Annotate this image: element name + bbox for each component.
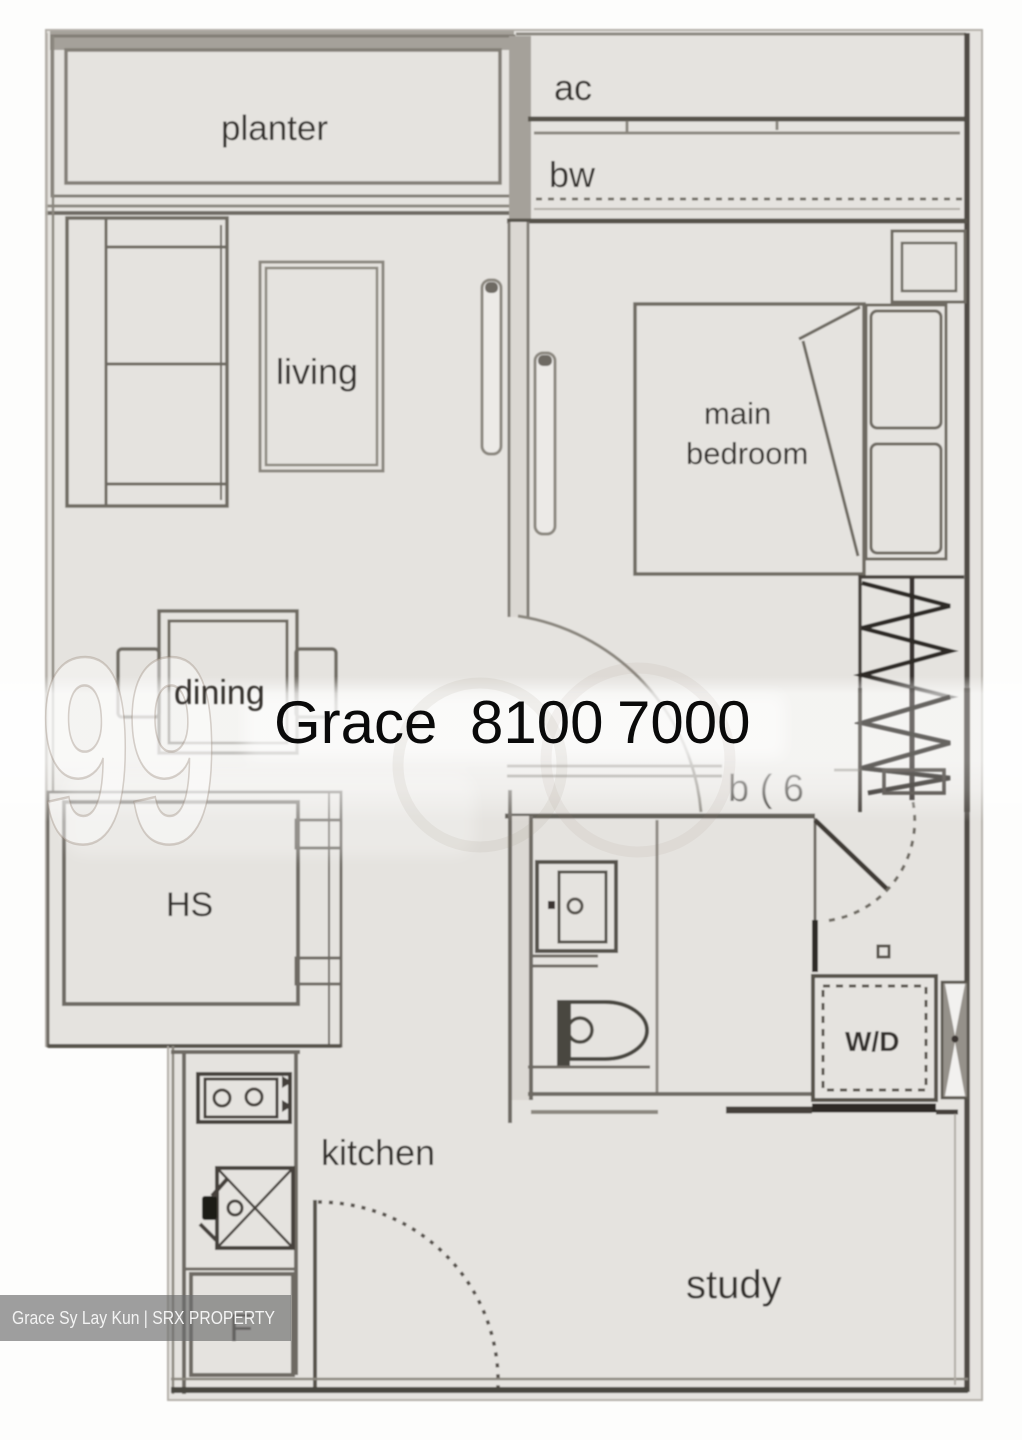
svg-text:99: 99 — [40, 602, 213, 899]
svg-text:7000: 7000 — [617, 689, 750, 756]
svg-text:dining: dining — [174, 674, 265, 712]
svg-text:bedroom: bedroom — [686, 436, 808, 471]
svg-text:study: study — [686, 1263, 782, 1307]
svg-text:ac: ac — [554, 67, 592, 108]
svg-text:W/D: W/D — [845, 1026, 899, 1057]
svg-text:Grace Sy Lay Kun | SRX PROPERT: Grace Sy Lay Kun | SRX PROPERTY — [12, 1307, 275, 1328]
svg-text:main: main — [704, 396, 771, 431]
svg-text:living: living — [276, 351, 358, 392]
svg-text:Grace: Grace — [274, 689, 437, 756]
svg-text:8100: 8100 — [470, 689, 603, 756]
svg-text:planter: planter — [221, 109, 328, 148]
svg-text:bw: bw — [549, 154, 596, 195]
svg-text:kitchen: kitchen — [321, 1132, 435, 1173]
